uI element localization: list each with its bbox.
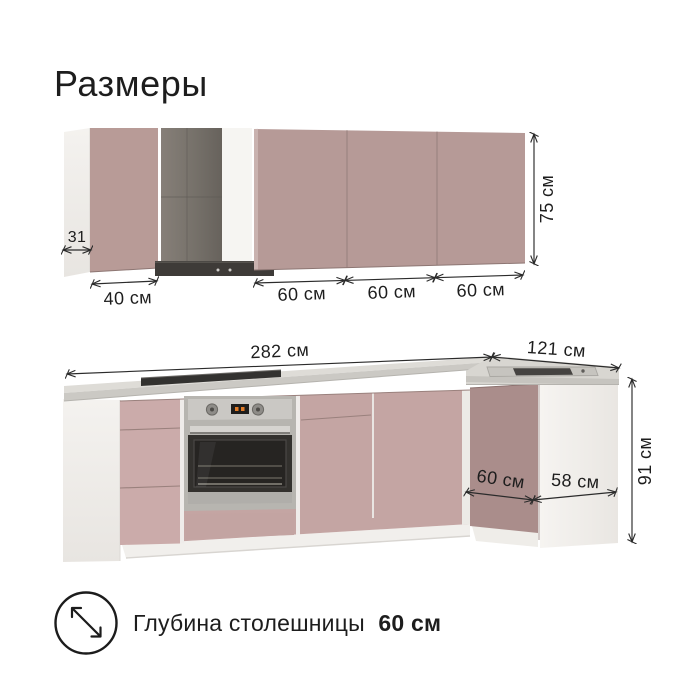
dim-label-width-60-c: 60 см: [456, 279, 505, 301]
oven-knob-center: [210, 408, 214, 412]
page-title: Размеры: [54, 63, 208, 104]
dim-width-60-b: 60 см: [345, 278, 435, 303]
dim-label-width-60-b: 60 см: [367, 281, 416, 303]
dim-width-40: 40 см: [92, 281, 157, 309]
dim-label-height-75: 75 см: [537, 175, 557, 223]
diagonal-resize-arrow-icon: [56, 593, 117, 654]
wall-cabinet-side-panel: [64, 128, 90, 277]
drawer-stack: [120, 399, 180, 545]
dim-line-width-60-b: [345, 278, 435, 281]
footer-text-label: Глубина столешницы: [133, 610, 365, 636]
dim-label-depth-31: 31: [68, 229, 86, 246]
footer-note: Глубина столешницы 60 см: [56, 593, 442, 654]
wall-gap: [222, 128, 252, 265]
stile-right-of-oven: [296, 396, 300, 535]
dim-label-height-91: 91 см: [635, 437, 655, 485]
oven-door-bottom: [188, 492, 292, 504]
dim-line-width-40: [92, 281, 157, 284]
kitchen-dimensions-infographic: Размеры 31: [0, 0, 700, 700]
range-hood-chimney: [161, 128, 222, 262]
corner-stile: [462, 390, 470, 525]
oven-knob-center: [256, 408, 260, 412]
dim-label-return-width: 121 см: [526, 337, 586, 361]
dim-label-width-60-a: 60 см: [277, 283, 326, 305]
dim-label-total-width: 282 см: [250, 340, 310, 363]
corner-side-panel: [470, 384, 538, 533]
drawer-under-oven: [186, 513, 294, 539]
oven-display-digit: [241, 407, 245, 411]
stile-left-of-oven: [180, 399, 184, 543]
dim-label-width-40: 40 см: [103, 287, 152, 309]
base-left-side-panel: [63, 399, 120, 562]
hood-light-icon: [217, 269, 220, 272]
hood-light-icon: [229, 269, 232, 272]
dim-height-91: 91 см: [632, 379, 655, 542]
wall-cabinet-left-stile: [254, 129, 258, 270]
sink-bowl: [513, 368, 573, 375]
end-panel-white: [540, 380, 618, 548]
footer-text: Глубина столешницы 60 см: [133, 610, 441, 636]
sink: [487, 367, 598, 377]
footer-text-value: 60 см: [378, 610, 441, 636]
base-cabinets-illustration: [63, 356, 619, 562]
wall-cabinet-40: [90, 128, 158, 272]
built-in-oven: [184, 396, 296, 539]
wall-cabinets-60-run: [254, 129, 525, 270]
oven-display: [231, 404, 249, 414]
dim-line-width-60-a: [255, 280, 345, 283]
wall-cabinets-illustration: [64, 128, 525, 277]
dim-width-60-c: 60 см: [435, 275, 523, 301]
dimensions-drawing: Размеры 31: [0, 0, 700, 700]
dim-line-width-60-c: [435, 275, 523, 278]
oven-display-digit: [235, 407, 239, 411]
icon-arrow-shaft: [73, 609, 101, 637]
dim-label-end-width: 58 см: [551, 470, 600, 493]
faucet-icon: [581, 369, 584, 372]
dim-width-60-a: 60 см: [255, 280, 345, 304]
dim-height-75: 75 см: [534, 134, 557, 264]
oven-handle: [190, 426, 290, 432]
